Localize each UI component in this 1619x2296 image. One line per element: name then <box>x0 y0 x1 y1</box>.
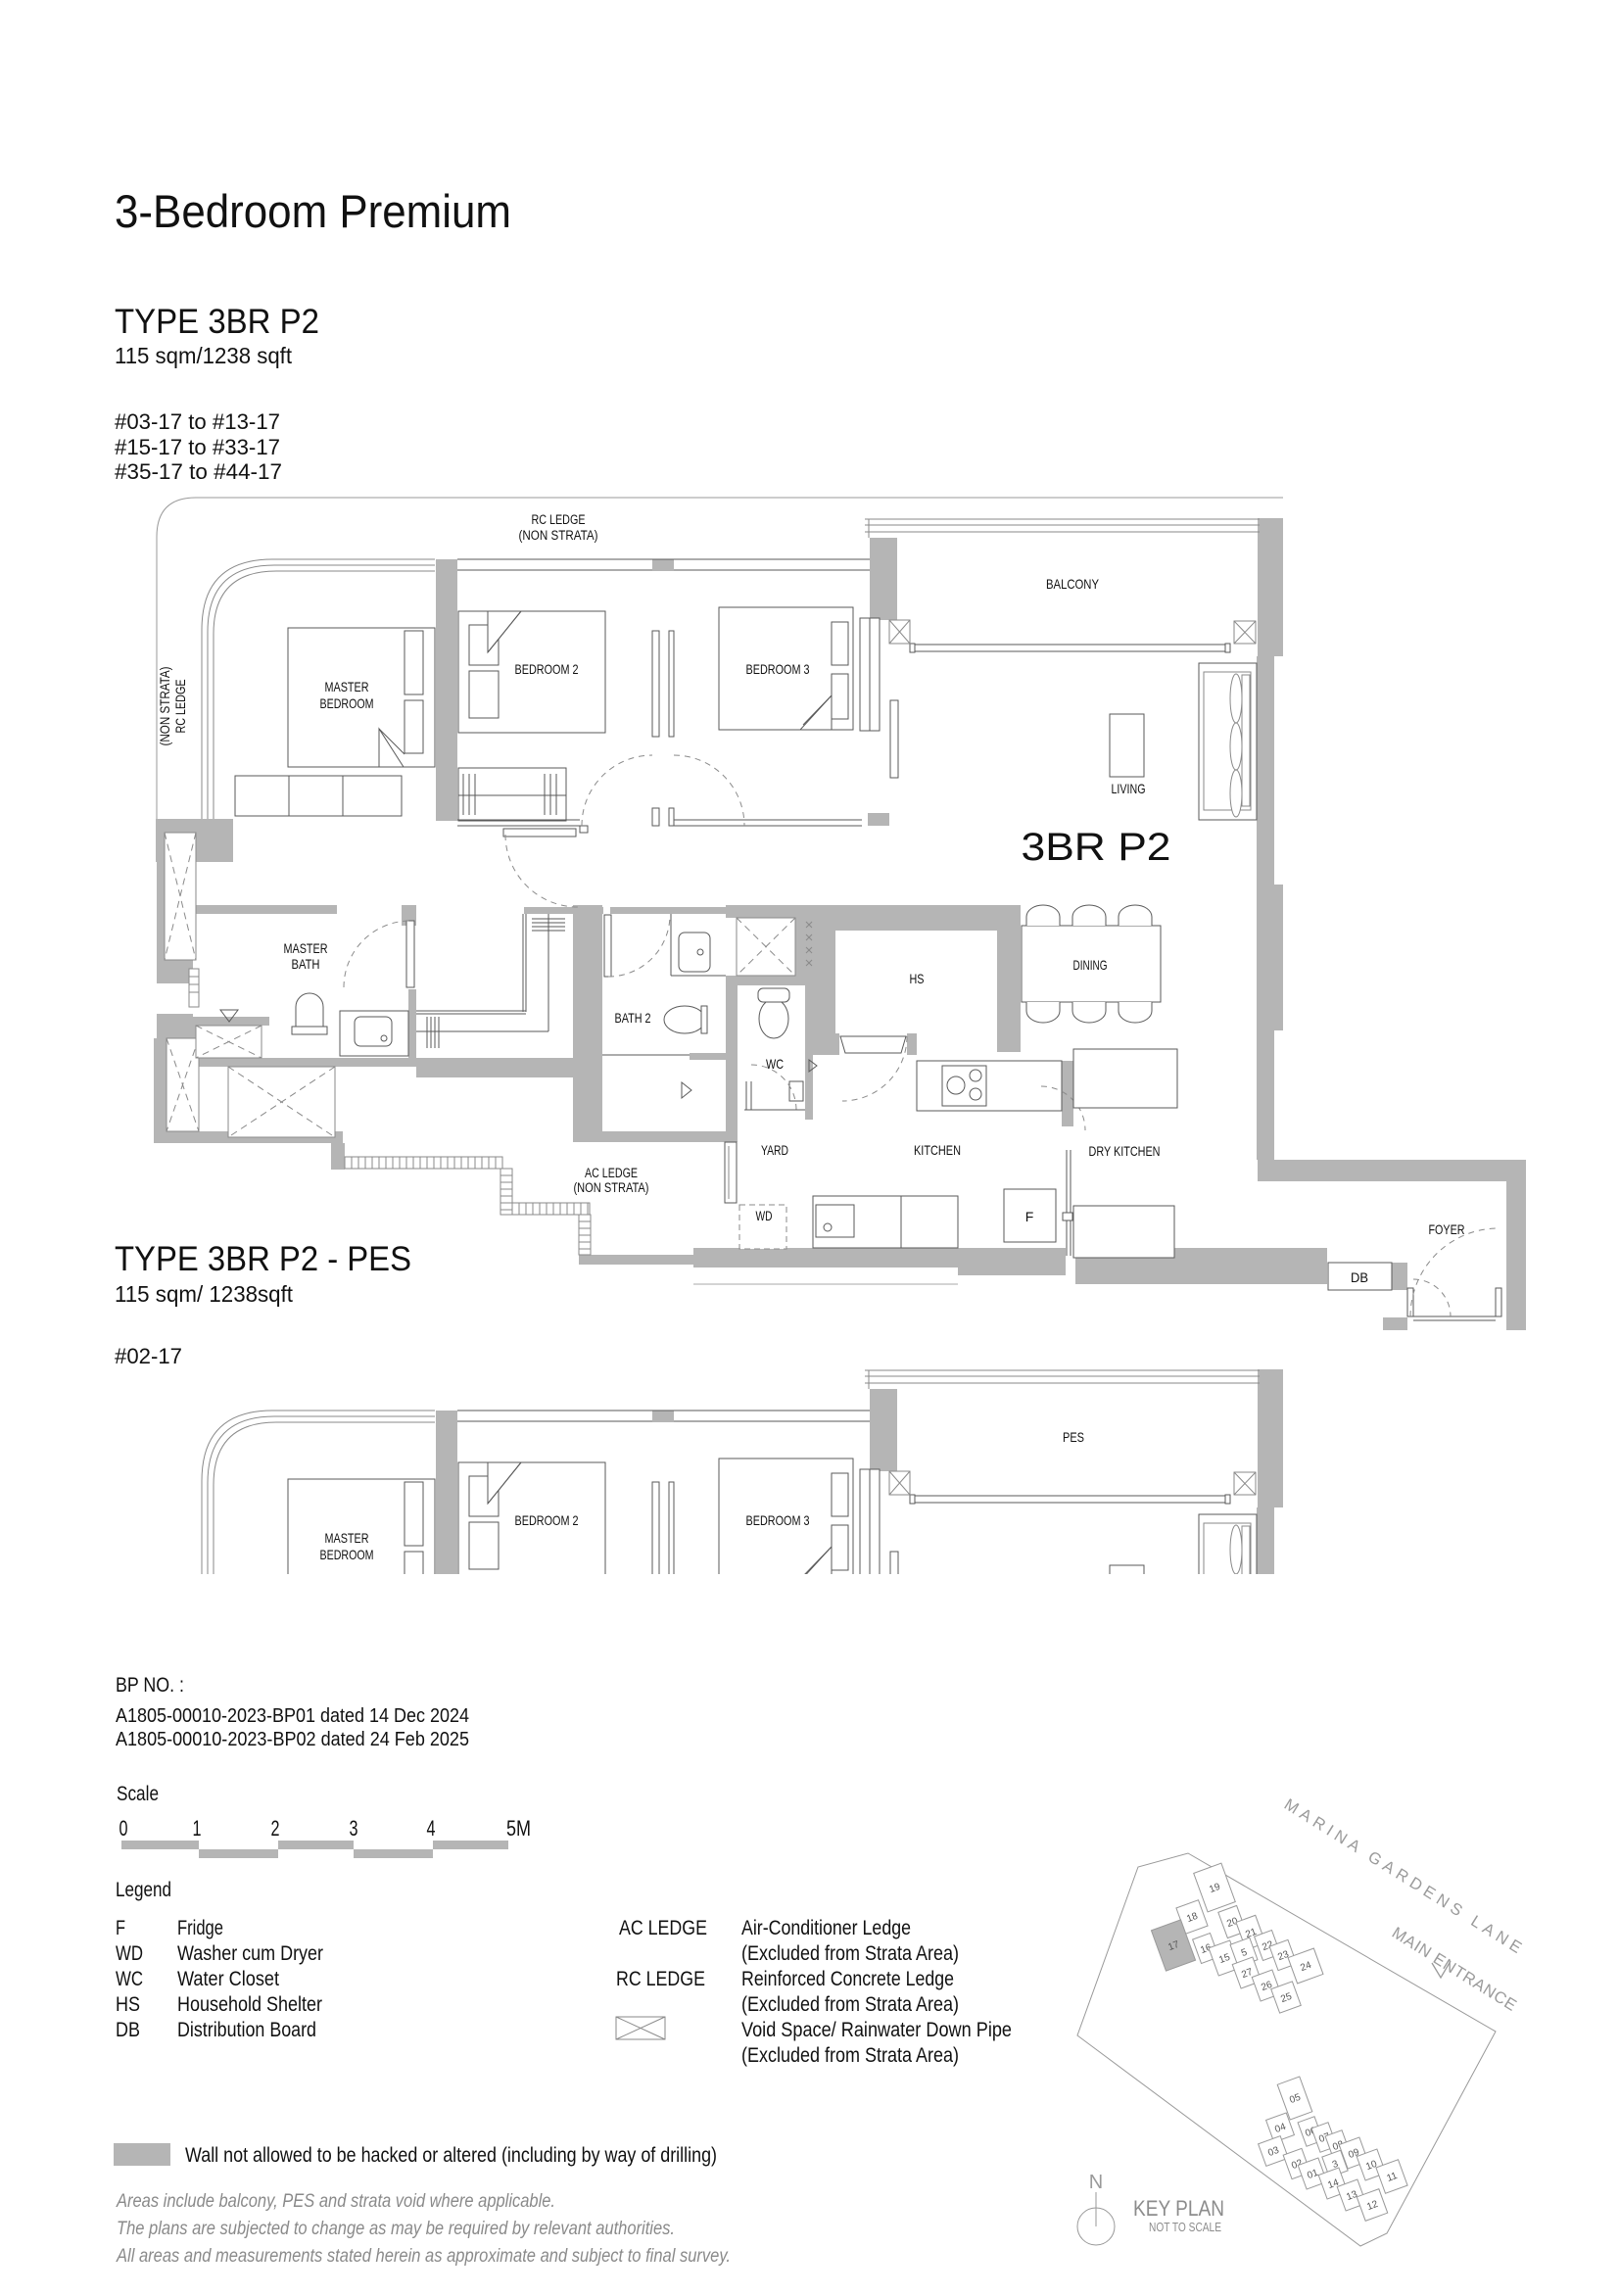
svg-text:(NON STRATA): (NON STRATA) <box>574 1180 649 1195</box>
svg-text:DB: DB <box>116 2018 140 2041</box>
svg-text:115 sqm/ 1238sqft: 115 sqm/ 1238sqft <box>115 1281 294 1307</box>
svg-text:0: 0 <box>119 1816 128 1841</box>
svg-text:BEDROOM: BEDROOM <box>320 695 374 711</box>
svg-text:Air-Conditioner Ledge: Air-Conditioner Ledge <box>741 1916 911 1939</box>
svg-text:115 sqm/1238 sqft: 115 sqm/1238 sqft <box>115 343 293 368</box>
svg-text:BATH: BATH <box>292 956 320 972</box>
svg-text:Distribution Board: Distribution Board <box>177 2018 316 2041</box>
svg-text:LIVING: LIVING <box>1112 781 1146 796</box>
svg-text:5M: 5M <box>506 1816 531 1841</box>
svg-text:RC LEDGE: RC LEDGE <box>616 1967 705 1990</box>
svg-text:RC LEDGE: RC LEDGE <box>532 512 586 527</box>
svg-text:WC: WC <box>116 1967 143 1990</box>
svg-text:A1805-00010-2023-BP02 dated 24: A1805-00010-2023-BP02 dated 24 Feb 2025 <box>116 1729 469 1750</box>
svg-text:WC: WC <box>766 1056 784 1072</box>
svg-text:KEY PLAN: KEY PLAN <box>1133 2196 1224 2221</box>
svg-text:All areas and measurements sta: All areas and measurements stated herein… <box>116 2245 731 2267</box>
svg-text:FOYER: FOYER <box>1429 1221 1465 1237</box>
svg-text:F: F <box>1025 1209 1034 1224</box>
svg-text:Legend: Legend <box>116 1878 171 1901</box>
svg-text:The plans are subjected to cha: The plans are subjected to change as may… <box>117 2218 675 2239</box>
svg-text:NOT TO SCALE: NOT TO SCALE <box>1149 2220 1221 2234</box>
svg-text:Reinforced Concrete Ledge: Reinforced Concrete Ledge <box>741 1967 954 1990</box>
svg-text:N: N <box>1089 2172 1103 2193</box>
svg-text:WD: WD <box>756 1209 773 1223</box>
svg-text:BEDROOM 3: BEDROOM 3 <box>746 1512 810 1528</box>
svg-text:BALCONY: BALCONY <box>1046 576 1100 592</box>
svg-text:MASTER: MASTER <box>325 1530 369 1546</box>
svg-text:Wall not allowed to be hacked: Wall not allowed to be hacked or altered… <box>185 2143 717 2167</box>
svg-text:3BR P2: 3BR P2 <box>1022 826 1171 869</box>
svg-text:4: 4 <box>427 1816 436 1841</box>
svg-text:TYPE 3BR P2: TYPE 3BR P2 <box>115 303 319 341</box>
svg-text:HS: HS <box>116 1992 140 2016</box>
svg-text:#35-17 to #44-17: #35-17 to #44-17 <box>115 459 282 484</box>
svg-text:F: F <box>116 1916 125 1939</box>
svg-text:BEDROOM 2: BEDROOM 2 <box>515 661 579 677</box>
svg-text:MASTER: MASTER <box>284 940 328 956</box>
svg-text:PES: PES <box>1063 1429 1084 1445</box>
svg-text:(Excluded from Strata Area): (Excluded from Strata Area) <box>741 1941 959 1965</box>
svg-text:A1805-00010-2023-BP01 dated 14: A1805-00010-2023-BP01 dated 14 Dec 2024 <box>116 1705 469 1727</box>
svg-text:KITCHEN: KITCHEN <box>914 1142 961 1158</box>
svg-text:HS: HS <box>910 971 925 986</box>
svg-text:DB: DB <box>1351 1270 1368 1285</box>
svg-text:BATH 2: BATH 2 <box>615 1010 651 1026</box>
svg-text:MASTER: MASTER <box>325 679 369 694</box>
svg-text:AC LEDGE: AC LEDGE <box>585 1166 638 1180</box>
svg-text:(Excluded from Strata Area): (Excluded from Strata Area) <box>741 2043 959 2067</box>
svg-text:WD: WD <box>116 1941 143 1965</box>
svg-text:DRY KITCHEN: DRY KITCHEN <box>1089 1143 1161 1159</box>
svg-text:TYPE 3BR P2 - PES: TYPE 3BR P2 - PES <box>115 1240 411 1278</box>
svg-text:#03-17 to #13-17: #03-17 to #13-17 <box>115 409 280 434</box>
svg-text:Washer cum Dryer: Washer cum Dryer <box>177 1941 323 1965</box>
svg-text:AC LEDGE: AC LEDGE <box>619 1916 707 1939</box>
svg-text:1: 1 <box>193 1816 202 1841</box>
svg-text:Household Shelter: Household Shelter <box>177 1992 322 2016</box>
svg-text:DINING: DINING <box>1073 957 1108 973</box>
svg-text:3-Bedroom Premium: 3-Bedroom Premium <box>115 185 511 237</box>
svg-text:#02-17: #02-17 <box>115 1344 182 1368</box>
svg-text:RC LEDGE: RC LEDGE <box>173 680 188 734</box>
svg-text:2: 2 <box>271 1816 280 1841</box>
svg-text:(Excluded from Strata Area): (Excluded from Strata Area) <box>741 1992 959 2016</box>
svg-text:Fridge: Fridge <box>177 1916 223 1939</box>
svg-text:Water Closet: Water Closet <box>177 1967 279 1990</box>
svg-text:(NON STRATA): (NON STRATA) <box>158 667 172 746</box>
svg-text:#15-17 to #33-17: #15-17 to #33-17 <box>115 435 280 459</box>
svg-text:Areas include balcony, PES and: Areas include balcony, PES and strata vo… <box>116 2190 555 2212</box>
svg-text:Void Space/ Rainwater Down Pip: Void Space/ Rainwater Down Pipe <box>741 2018 1012 2041</box>
svg-text:(NON STRATA): (NON STRATA) <box>519 528 598 543</box>
svg-text:BEDROOM 3: BEDROOM 3 <box>746 661 810 677</box>
svg-text:BEDROOM: BEDROOM <box>320 1547 374 1562</box>
svg-text:BP NO. :: BP NO. : <box>116 1674 184 1697</box>
svg-text:Scale: Scale <box>117 1783 159 1805</box>
svg-text:3: 3 <box>350 1816 358 1841</box>
svg-text:BEDROOM 2: BEDROOM 2 <box>515 1512 579 1528</box>
svg-text:YARD: YARD <box>761 1142 788 1158</box>
